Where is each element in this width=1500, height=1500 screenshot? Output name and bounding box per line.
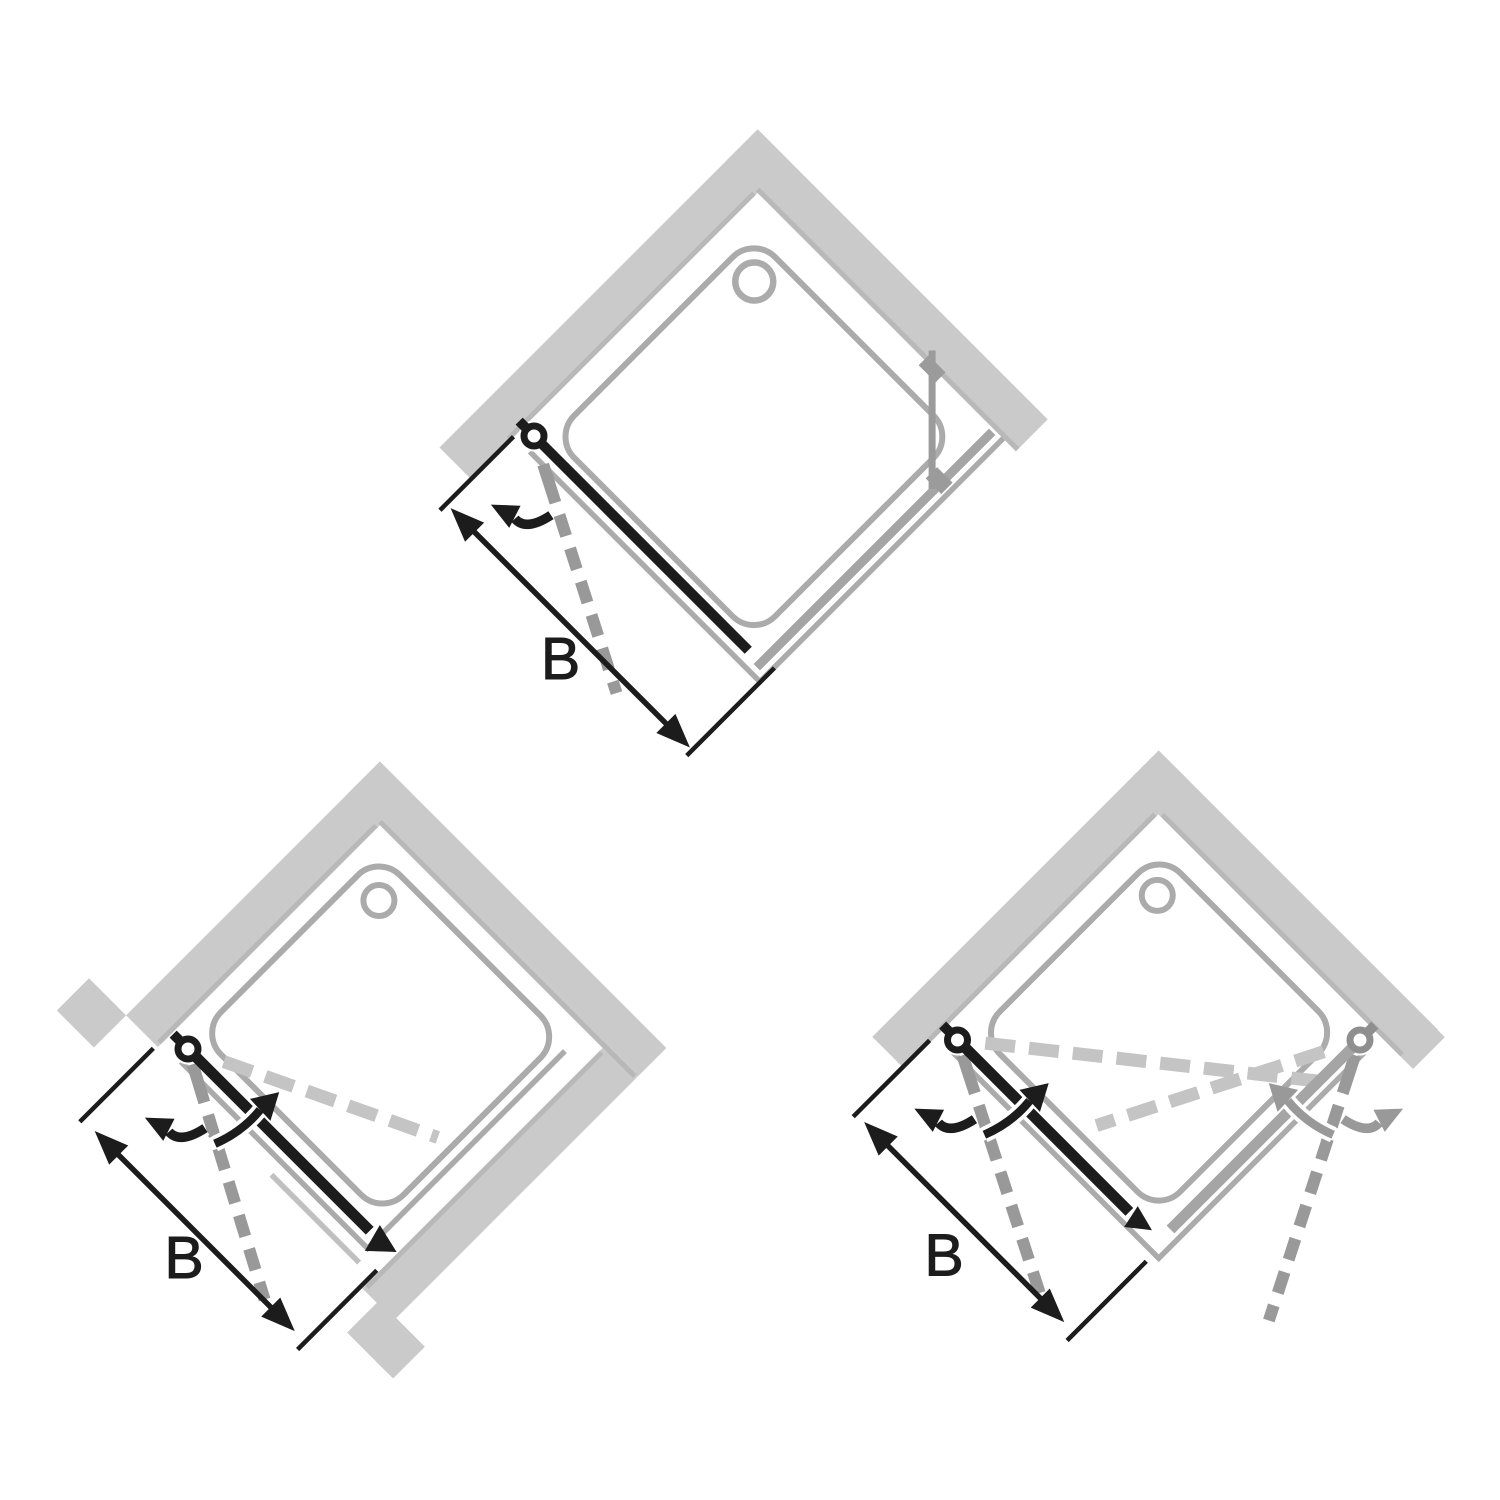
svg-text:B: B — [164, 1225, 203, 1291]
svg-text:B: B — [924, 1223, 963, 1289]
svg-text:B: B — [541, 626, 580, 692]
